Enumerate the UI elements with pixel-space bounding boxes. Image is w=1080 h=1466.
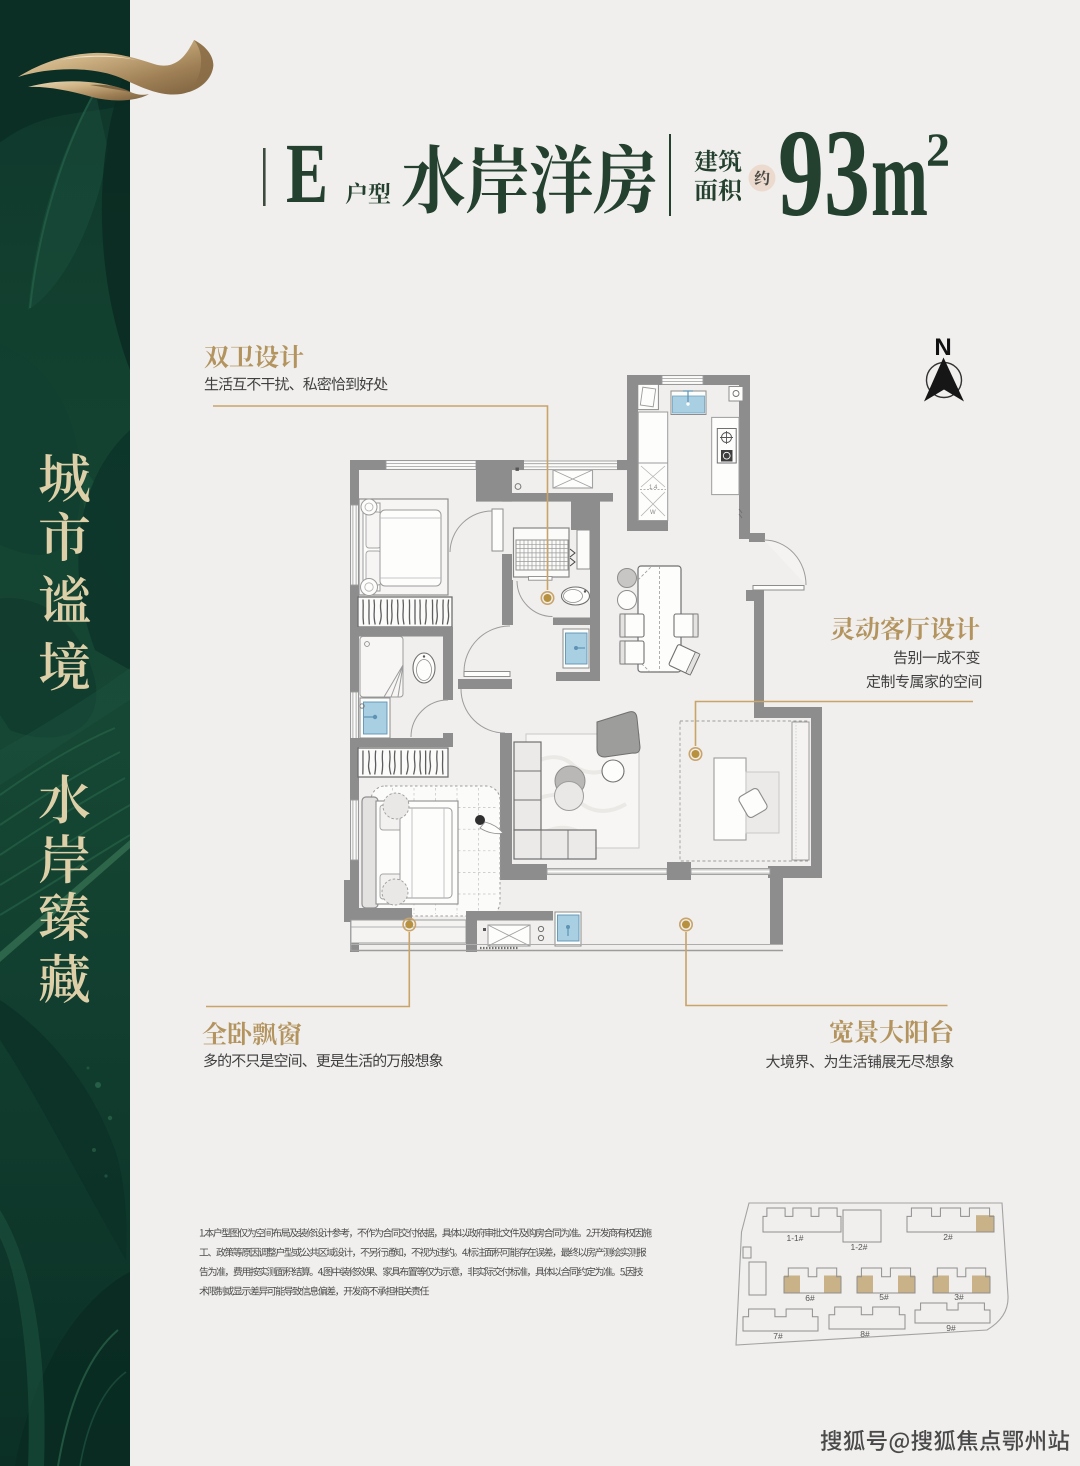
- svg-text:W: W: [650, 510, 656, 516]
- svg-text:93: 93: [778, 105, 870, 243]
- svg-text:2#: 2#: [943, 1232, 953, 1242]
- svg-text:5#: 5#: [879, 1292, 889, 1302]
- svg-text:6#: 6#: [805, 1293, 815, 1303]
- svg-text:N: N: [934, 334, 951, 361]
- svg-text:E: E: [286, 125, 328, 221]
- svg-text:8#: 8#: [860, 1329, 870, 1339]
- svg-text:3#: 3#: [954, 1292, 964, 1302]
- svg-text:2: 2: [926, 124, 950, 177]
- svg-text:m: m: [871, 116, 928, 240]
- svg-text:1.4: 1.4: [649, 485, 658, 491]
- svg-text:1-2#: 1-2#: [850, 1242, 867, 1252]
- svg-text:9#: 9#: [946, 1323, 956, 1333]
- svg-text:7#: 7#: [773, 1331, 783, 1341]
- svg-text:1-1#: 1-1#: [786, 1233, 803, 1243]
